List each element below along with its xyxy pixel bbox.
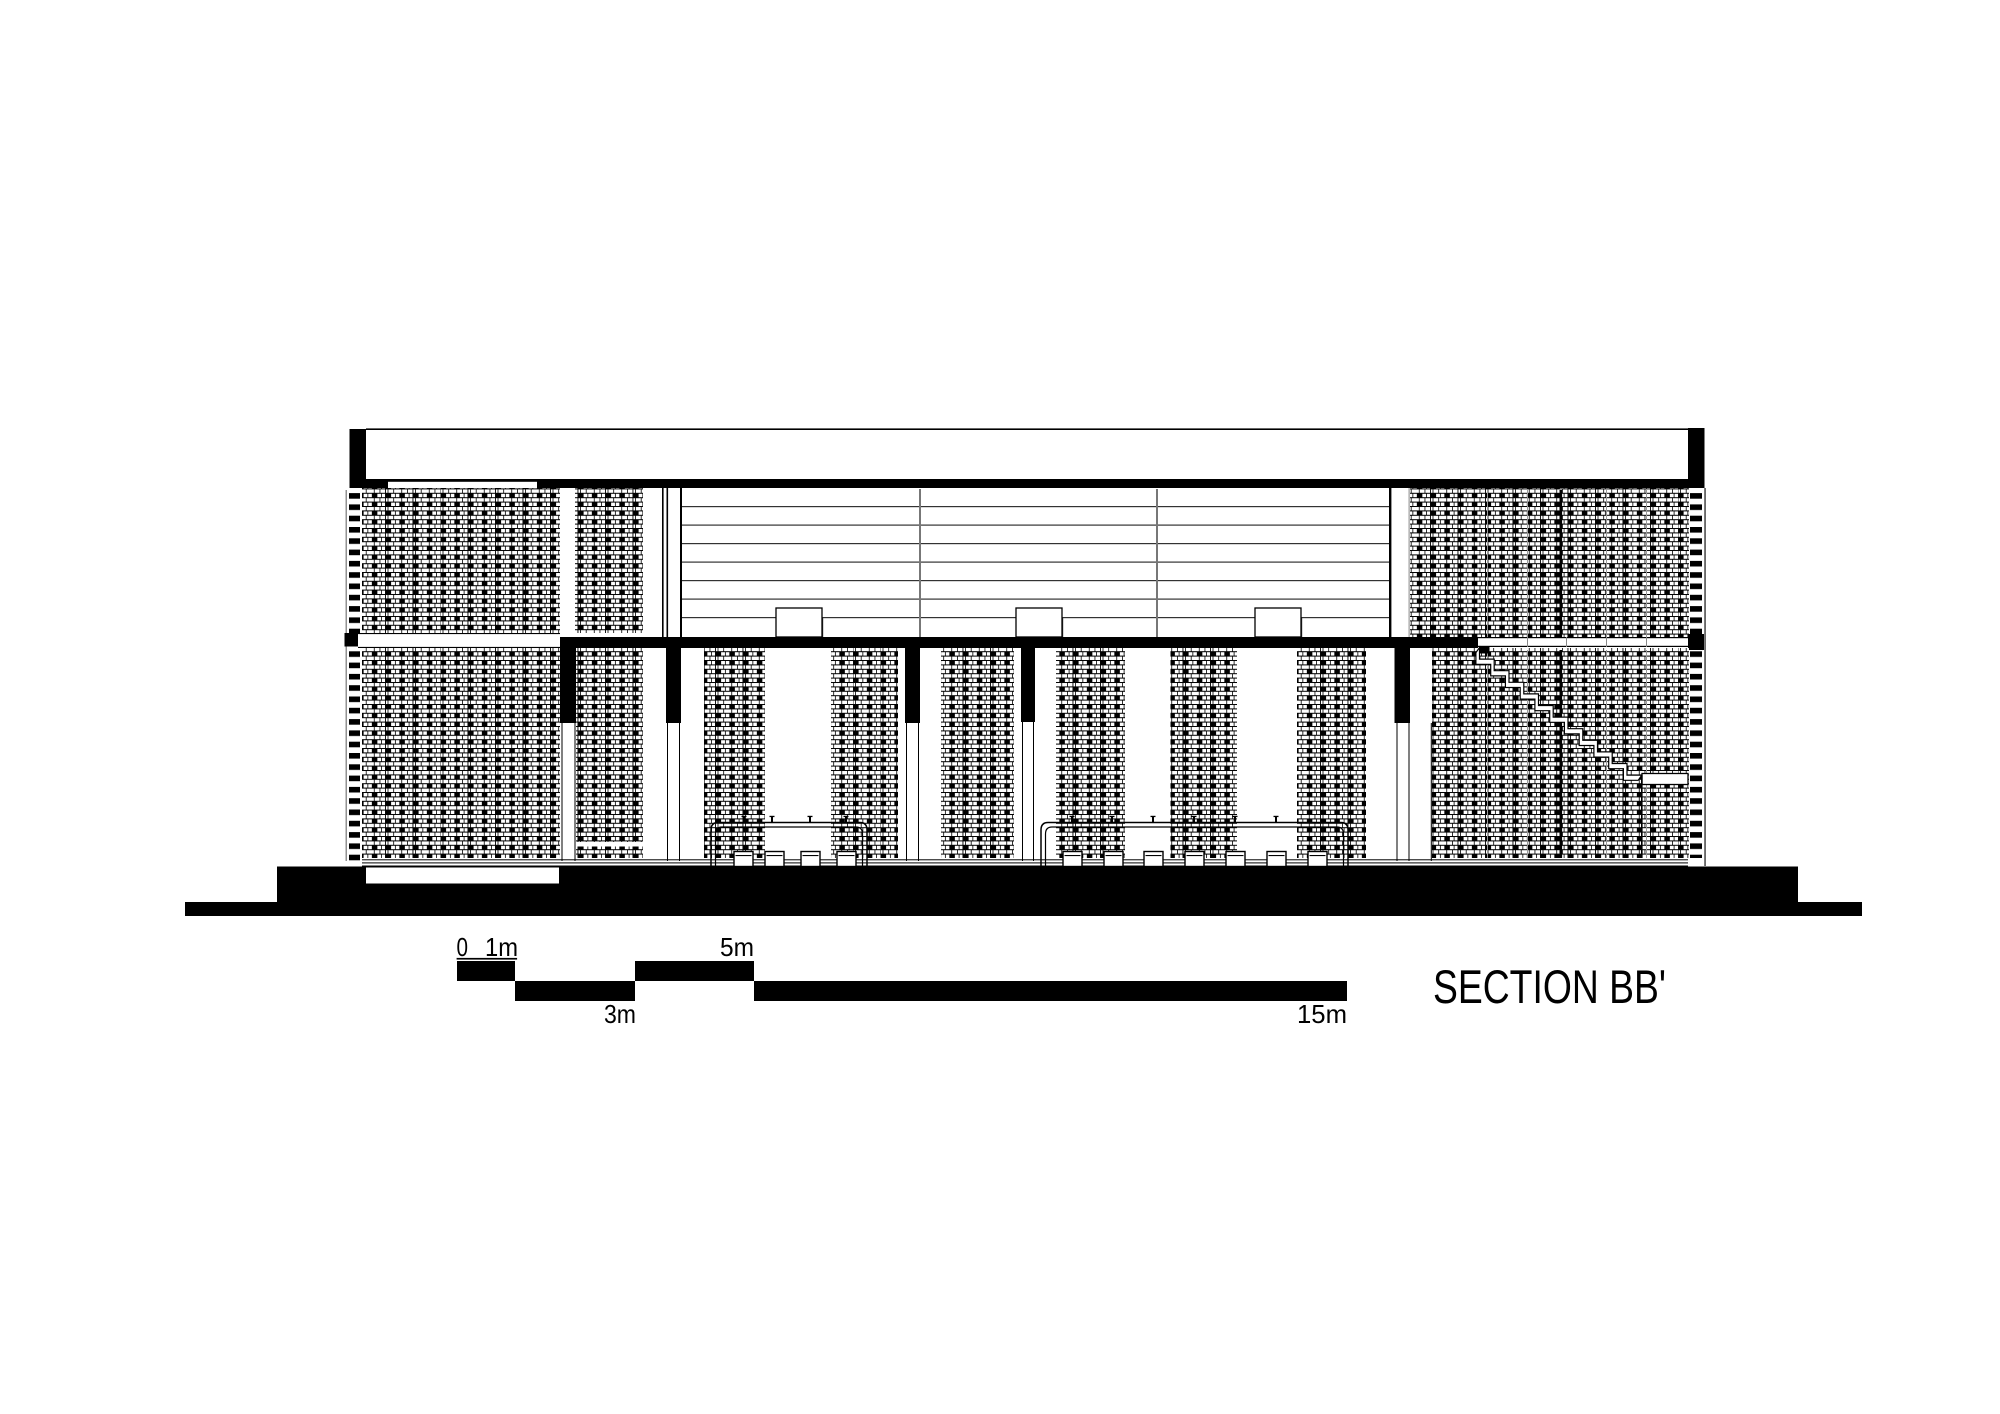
svg-text:3m: 3m	[604, 999, 636, 1029]
svg-text:1m: 1m	[485, 932, 518, 962]
svg-text:0: 0	[457, 932, 469, 962]
svg-text:15m: 15m	[1297, 999, 1347, 1029]
svg-text:5m: 5m	[720, 932, 754, 962]
svg-text:SECTION BB': SECTION BB'	[1433, 960, 1666, 1013]
